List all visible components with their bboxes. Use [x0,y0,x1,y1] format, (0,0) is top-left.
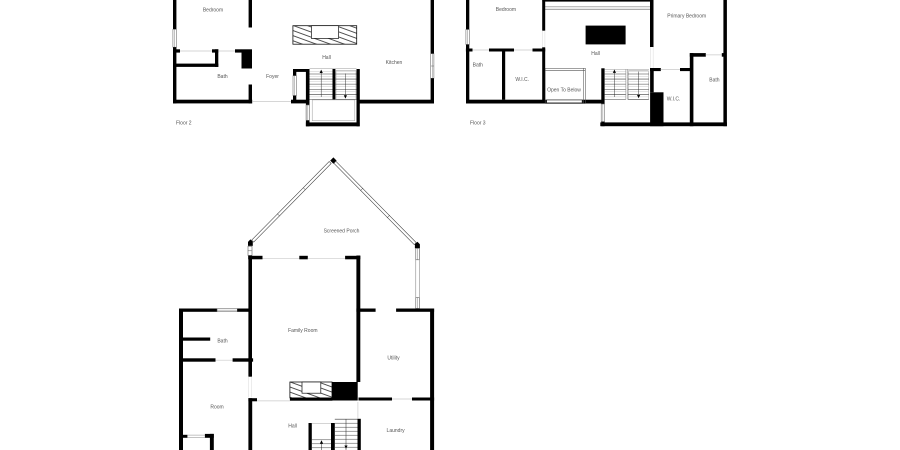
svg-text:Bath: Bath [217,74,228,80]
svg-text:Primary Bedroom: Primary Bedroom [667,13,706,19]
svg-text:Hall: Hall [591,51,600,57]
svg-text:Bath: Bath [217,338,228,344]
svg-text:Laundry: Laundry [387,428,406,434]
svg-text:Bath: Bath [473,63,484,69]
svg-text:W.I.C.: W.I.C. [667,97,681,103]
svg-text:Hall: Hall [322,55,331,61]
svg-text:Screened Porch: Screened Porch [324,229,360,235]
svg-text:Utility: Utility [387,356,400,362]
svg-text:Kitchen: Kitchen [386,60,403,66]
svg-text:Open To Below: Open To Below [547,88,581,94]
svg-text:Hall: Hall [288,424,297,430]
svg-text:Bedroom: Bedroom [496,7,516,13]
svg-text:Floor 3: Floor 3 [470,120,486,126]
svg-text:Bath: Bath [709,78,720,84]
svg-text:Foyer: Foyer [266,74,279,80]
svg-text:Room: Room [210,404,223,410]
svg-text:Family Room: Family Room [288,328,317,334]
svg-text:Floor 2: Floor 2 [176,121,192,127]
svg-text:Bedroom: Bedroom [203,8,223,14]
svg-text:W.I.C.: W.I.C. [515,77,529,83]
